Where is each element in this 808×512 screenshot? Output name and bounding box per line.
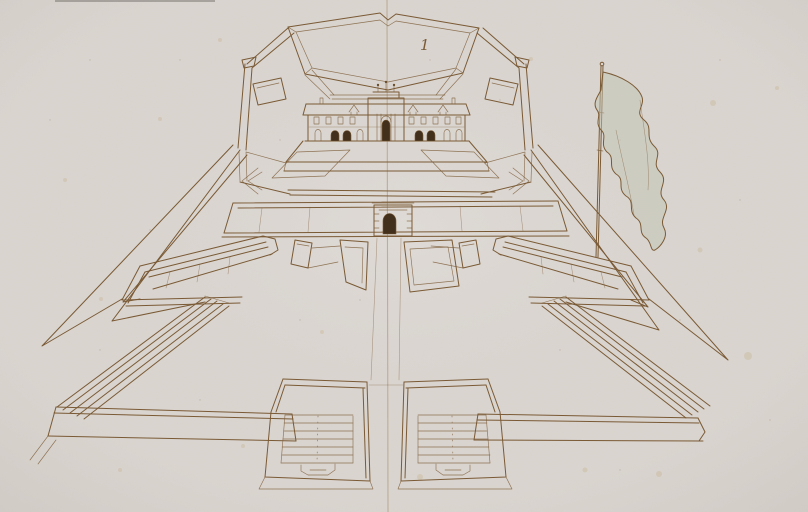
gate-arch [383, 214, 396, 234]
paper-background [0, 0, 808, 512]
fort-drawing: 1 [0, 0, 808, 512]
manuscript-page: 1 [0, 0, 808, 512]
palace-portal-door [382, 120, 390, 141]
bastion-number-label: 1 [420, 36, 430, 54]
